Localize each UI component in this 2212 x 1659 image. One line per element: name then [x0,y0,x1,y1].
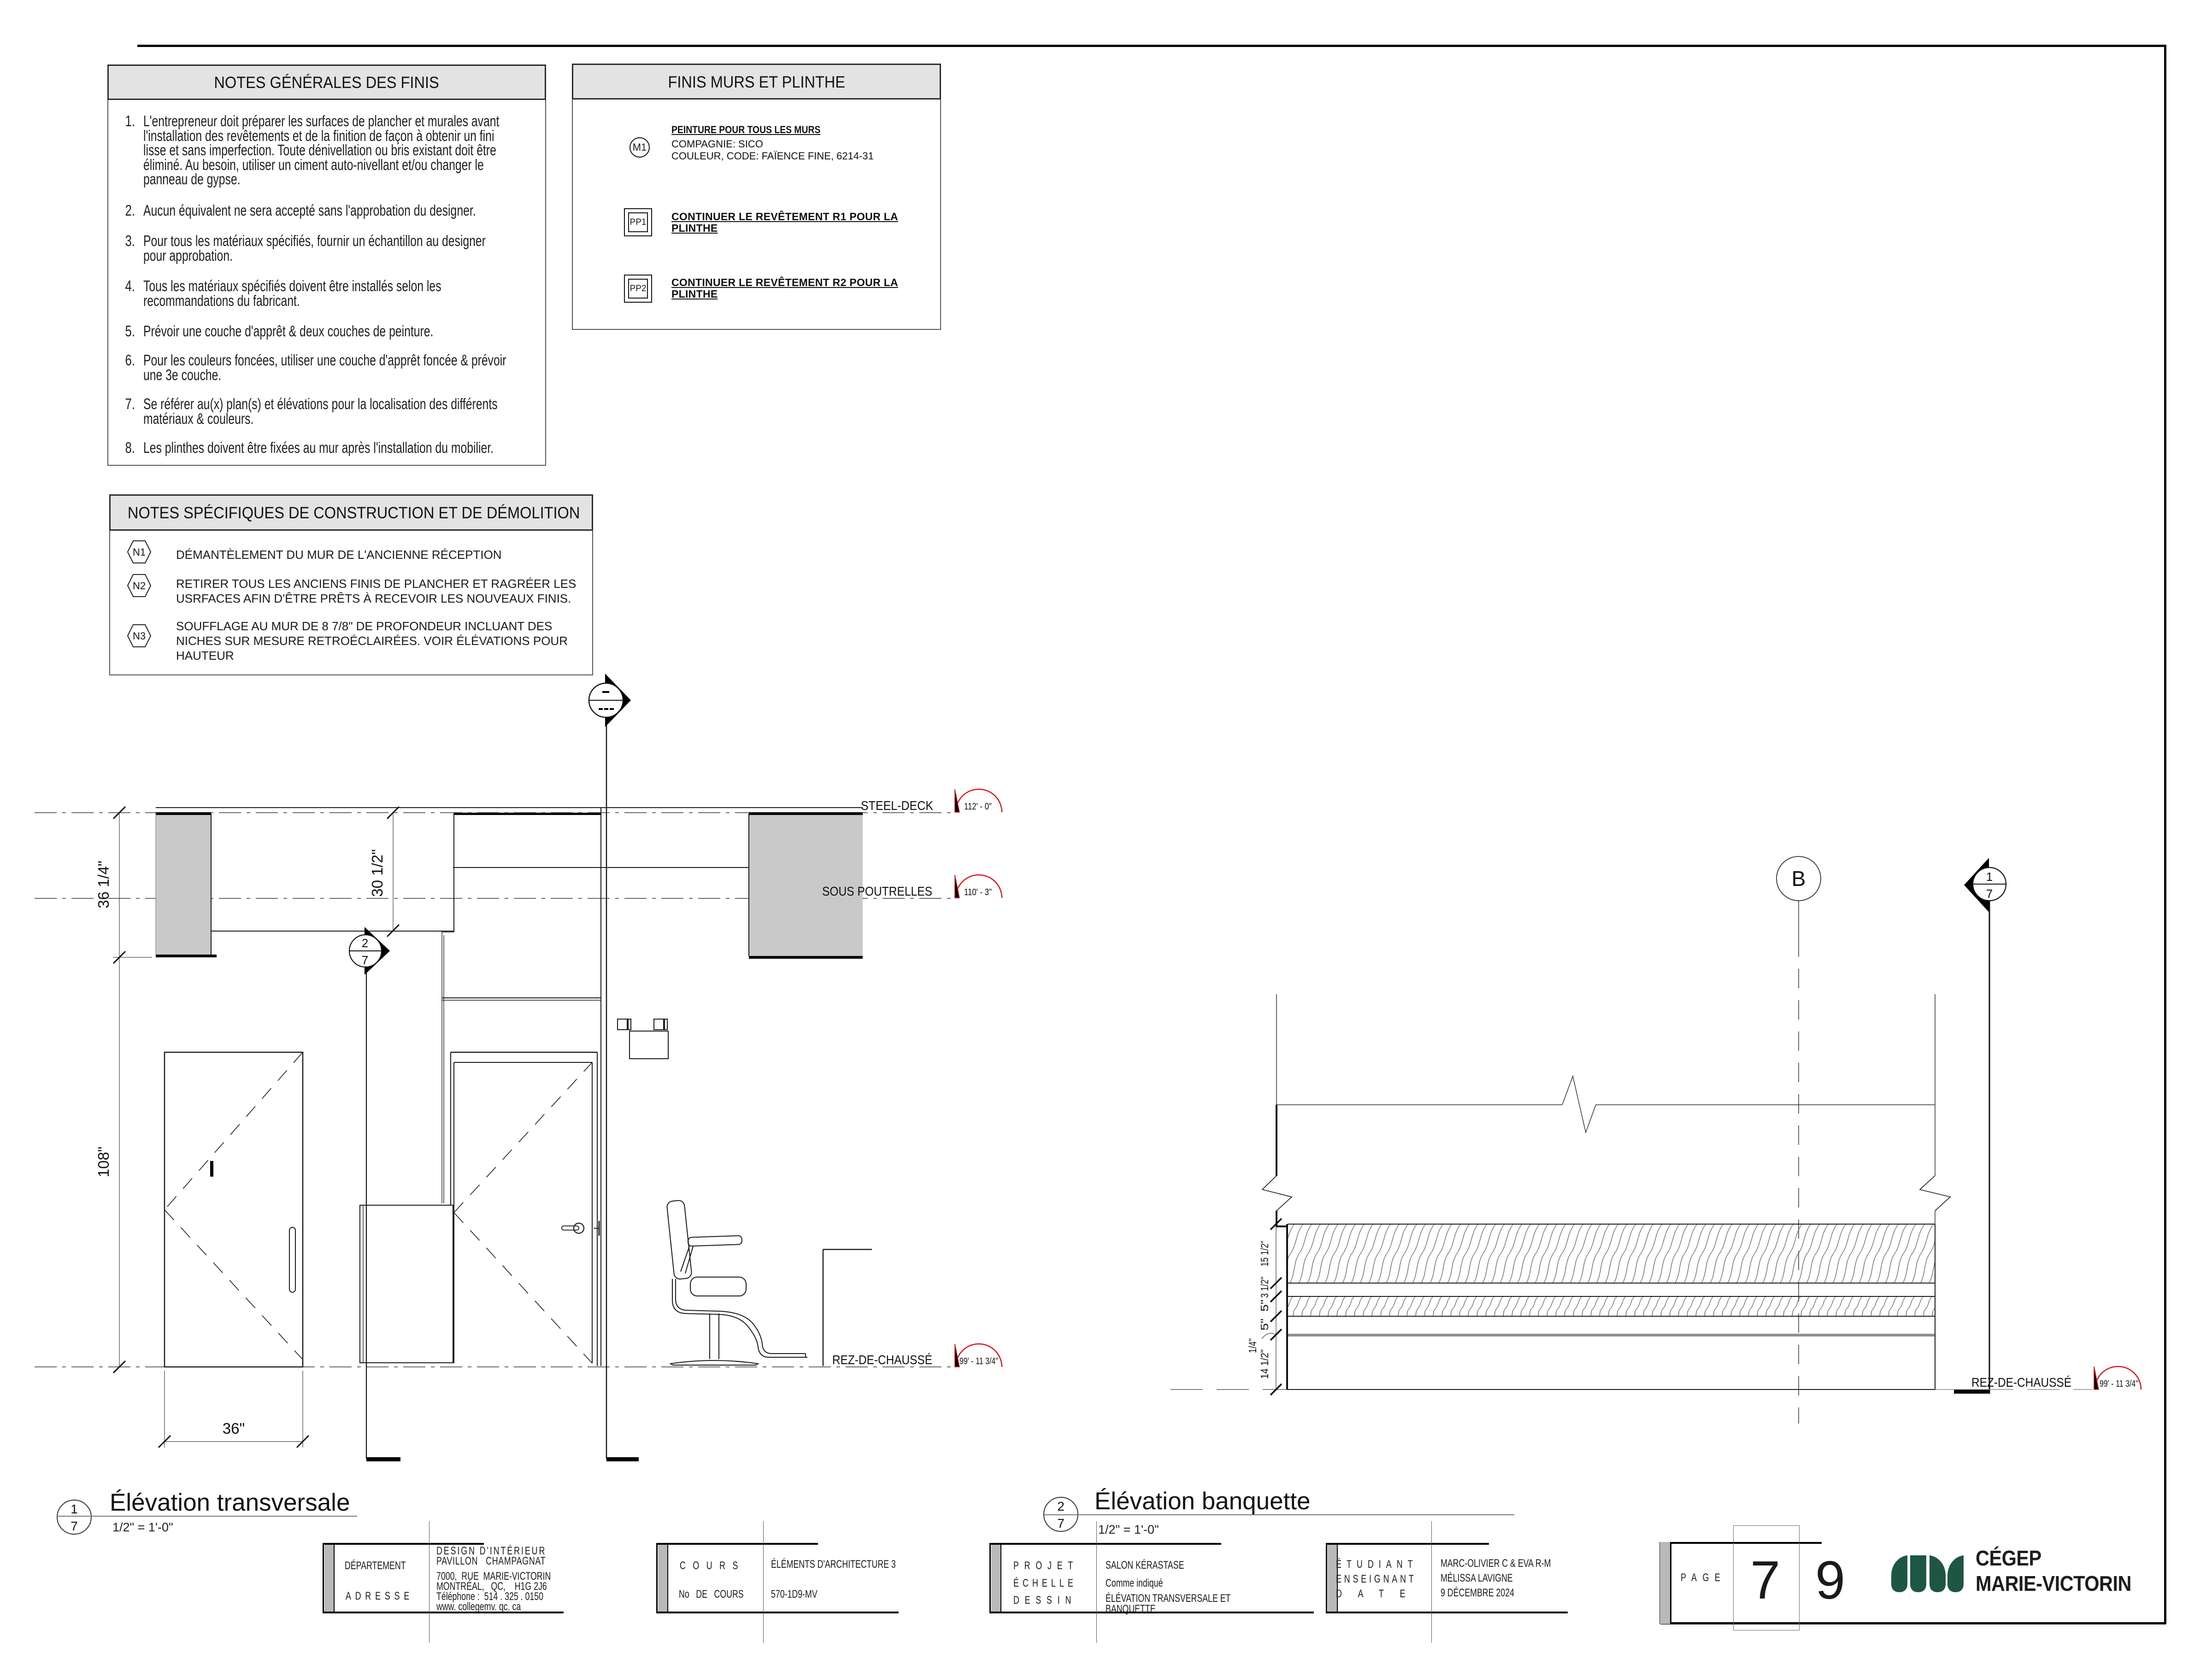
svg-text:2: 2 [362,936,368,950]
svg-text:REZ-DE-CHAUSSÉ: REZ-DE-CHAUSSÉ [832,1353,932,1367]
svg-text:REZ-DE-CHAUSSÉ: REZ-DE-CHAUSSÉ [1971,1375,2071,1389]
svg-text:Élévation transversale: Élévation transversale [110,1489,350,1516]
svg-text:7: 7 [362,953,368,967]
svg-text:3 1/2": 3 1/2" [1259,1277,1271,1298]
svg-text:1/2" = 1'-0": 1/2" = 1'-0" [1098,1523,1159,1536]
svg-text:2: 2 [1057,1499,1065,1513]
svg-text:99' - 11 3/4": 99' - 11 3/4" [959,1356,998,1366]
svg-text:5": 5" [1259,1300,1271,1312]
svg-text:112' - 0": 112' - 0" [964,802,992,812]
svg-text:1: 1 [1986,870,1993,884]
svg-text:5": 5" [1259,1319,1271,1331]
svg-text:7: 7 [71,1519,78,1533]
svg-text:36 1/4": 36 1/4" [95,861,112,908]
svg-text:110' - 3": 110' - 3" [964,887,992,897]
svg-text:7: 7 [1057,1516,1065,1530]
svg-text:108": 108" [95,1147,112,1178]
svg-text:7: 7 [1986,887,1993,901]
svg-text:1: 1 [71,1502,78,1516]
svg-text:SOUS POUTRELLES: SOUS POUTRELLES [822,884,932,898]
svg-text:30 1/2": 30 1/2" [369,849,386,897]
svg-text:1/2" = 1'-0": 1/2" = 1'-0" [112,1520,173,1534]
svg-text:B: B [1792,867,1806,891]
svg-text:99' - 11 3/4": 99' - 11 3/4" [2100,1379,2138,1389]
svg-text:14 1/2": 14 1/2" [1259,1349,1271,1379]
svg-text:1/4": 1/4" [1247,1338,1259,1353]
svg-text:Élévation banquette: Élévation banquette [1094,1488,1311,1515]
svg-text:36": 36" [223,1420,245,1437]
svg-text:15 1/2": 15 1/2" [1259,1241,1271,1266]
svg-text:STEEL-DECK: STEEL-DECK [861,798,933,813]
